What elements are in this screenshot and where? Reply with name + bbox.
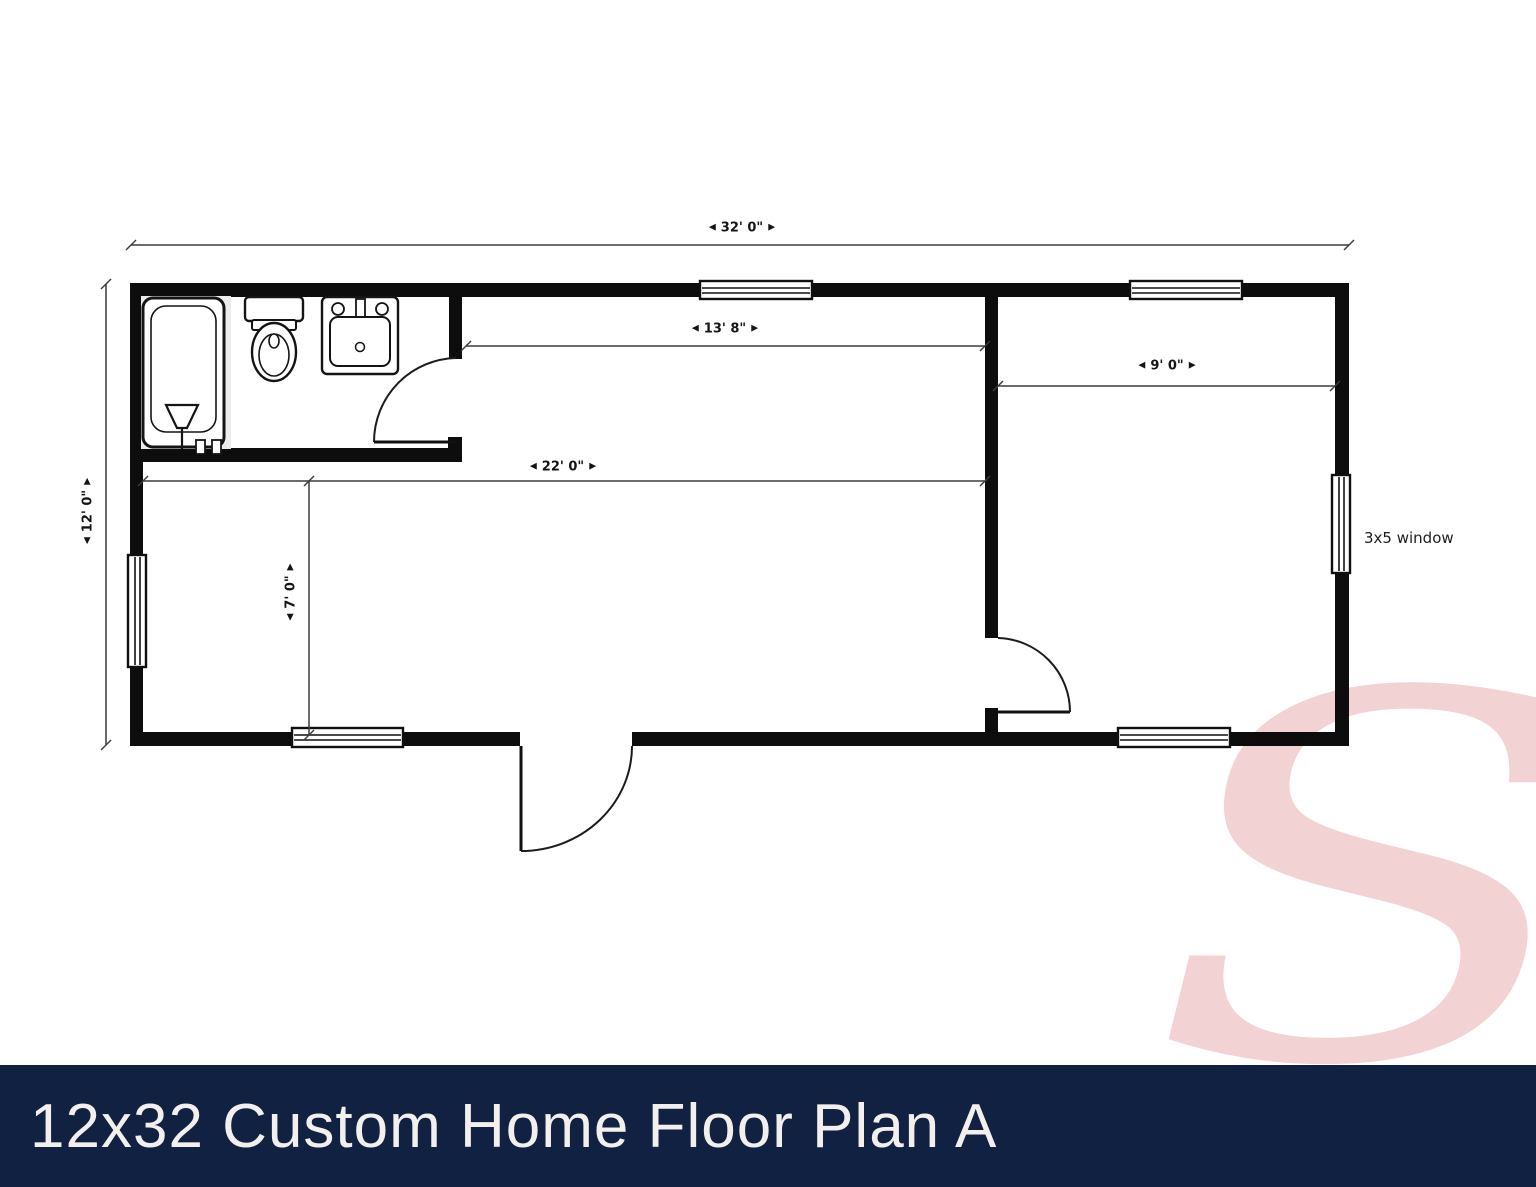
arrow-left-icon: ◀ [287,614,296,621]
floor-plan-page: ◀ 32' 0" ▶ ◀ 12' 0" ▶ ◀ 13' 8" ▶ ◀ 22' 0… [0,0,1536,1187]
window-size-note: 3x5 window [1364,529,1454,547]
arrow-right-icon: ▶ [84,478,93,485]
window-right-wall-3x5 [1332,475,1350,573]
arrow-right-icon: ▶ [751,325,758,334]
bedroom-partition-wall-upper [985,283,998,638]
arrow-left-icon: ◀ [84,537,93,544]
bathroom-bottom-wall [130,448,462,462]
dim-label-living-top-width: ◀ 13' 8" ▶ [692,322,758,337]
window-top-living [700,281,812,299]
dim-label-overall-depth: ◀ 12' 0" ▶ [81,478,96,544]
arrow-left-icon: ◀ [709,224,716,233]
toilet [245,297,303,381]
bathtub [141,296,231,454]
bathroom-sink [322,297,398,374]
dim-label-living-width: ◀ 22' 0" ▶ [530,460,596,475]
window-left-wall [128,555,146,667]
title-banner: 12x32 Custom Home Floor Plan A [0,1065,1536,1187]
arrow-right-icon: ▶ [1189,362,1196,371]
dim-label-bedroom-width: ◀ 9' 0" ▶ [1138,359,1195,374]
floor-plan-drawing [0,0,1536,1065]
arrow-right-icon: ▶ [768,224,775,233]
arrow-left-icon: ◀ [530,463,537,472]
bathroom-right-wall [449,283,462,359]
page-title: 12x32 Custom Home Floor Plan A [0,1091,997,1162]
arrow-right-icon: ▶ [287,563,296,570]
arrow-right-icon: ▶ [589,463,596,472]
bedroom-door [998,638,1070,712]
arrow-left-icon: ◀ [692,325,699,334]
dim-label-left-room-depth: ◀ 7' 0" ▶ [284,563,299,620]
dim-label-overall-width: ◀ 32' 0" ▶ [709,221,775,236]
window-bottom-bedroom [1118,728,1230,747]
arrow-left-icon: ◀ [1138,362,1145,371]
bedroom-partition-wall-lower [985,708,998,746]
main-entry-door [521,746,632,851]
window-top-bedroom [1130,281,1242,299]
